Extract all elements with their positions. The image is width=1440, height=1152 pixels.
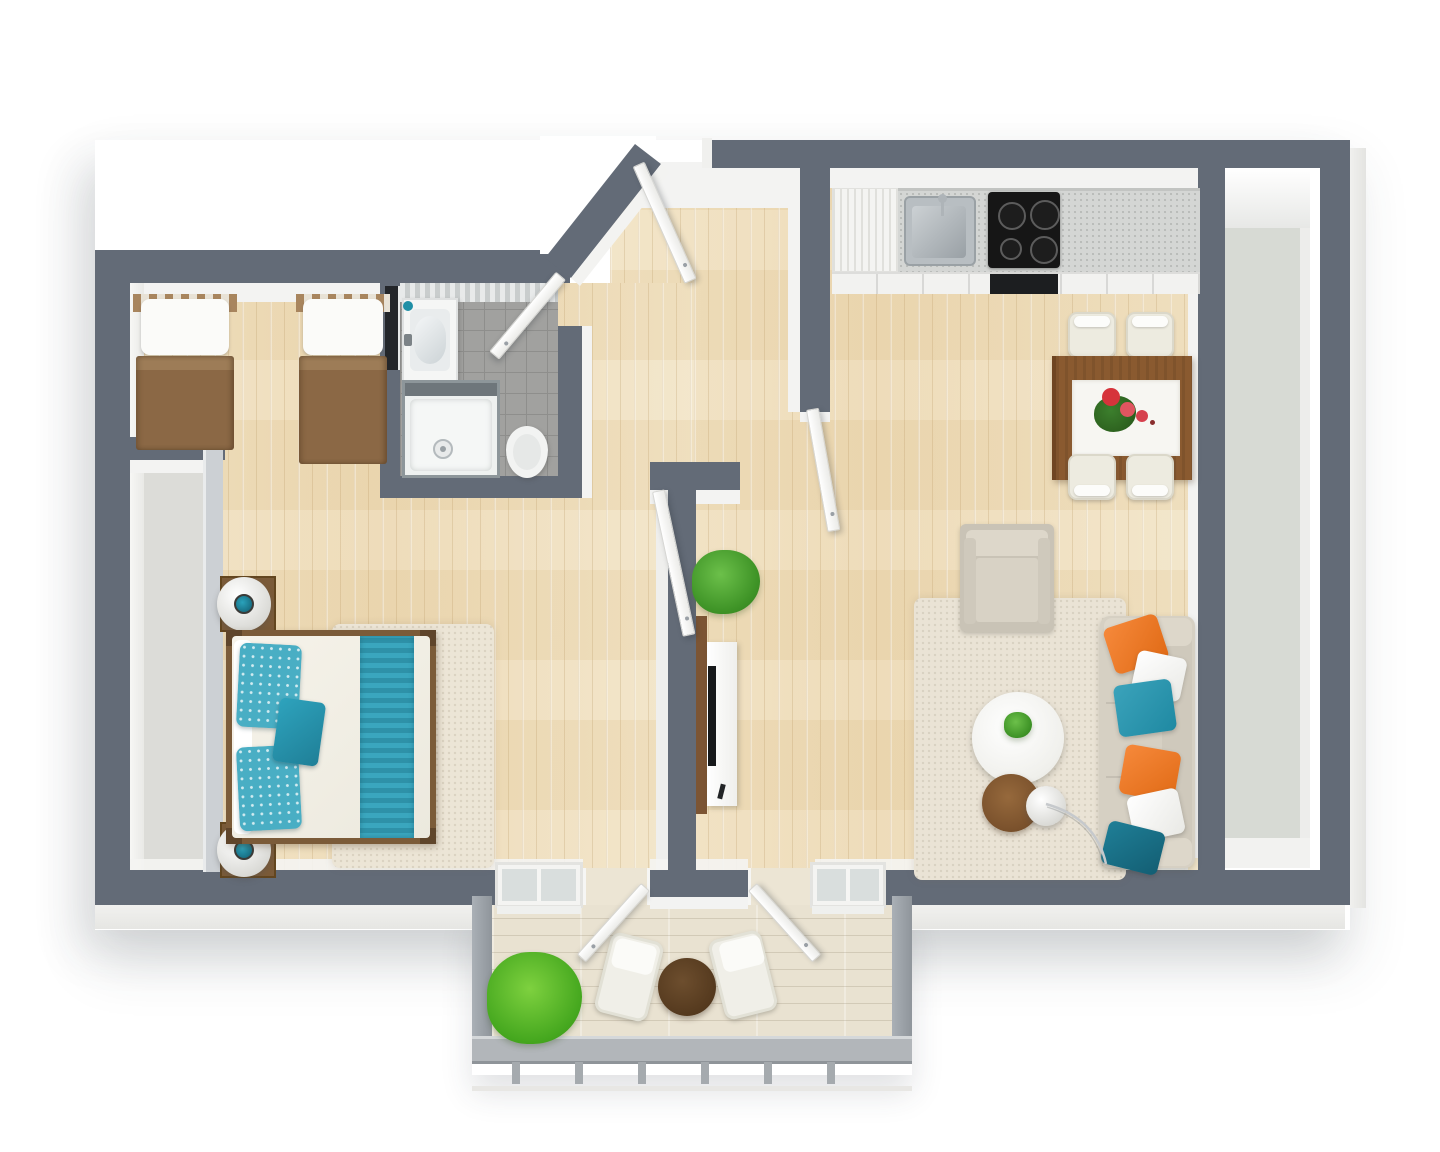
- window-sill-left: [497, 906, 581, 914]
- twin-bed-1: [133, 294, 237, 452]
- railing-post: [827, 1062, 835, 1084]
- wall-right: [1320, 140, 1350, 905]
- wall-left: [95, 250, 130, 905]
- flower-red-icon: [1136, 410, 1148, 422]
- outer-face-bottom-east: [908, 905, 1345, 929]
- sink-tap-icon: [404, 334, 412, 346]
- wall-face-hallwall-west: [788, 172, 800, 412]
- wall-face-strip-top: [1225, 168, 1310, 228]
- bathroom-cup-icon: [403, 301, 413, 311]
- pier-south-face: [650, 897, 748, 909]
- kitchen-sink: [904, 196, 976, 266]
- flower-bud-icon: [1150, 420, 1155, 425]
- balcony-window-left: [495, 862, 583, 908]
- entry-jamb-right: [702, 138, 712, 168]
- wall-face-bottom-2: [650, 859, 748, 870]
- double-bed: [226, 630, 436, 844]
- dining-chair-bottom-right: [1126, 454, 1174, 500]
- dining-chair-top-left: [1068, 312, 1116, 358]
- wall-nook-right: [203, 437, 223, 872]
- flower-red-icon: [1102, 388, 1120, 406]
- wall-face-bathright-east: [582, 326, 592, 498]
- twin-bed-2: [296, 294, 390, 466]
- sofa-pillow-teal: [1113, 678, 1178, 738]
- wall-face-kitchen-top: [830, 168, 1203, 188]
- balcony-table: [658, 958, 716, 1016]
- bed-runner: [360, 636, 414, 838]
- wall-kitchen-stub: [800, 150, 830, 412]
- wall-face-strip-right: [1300, 228, 1310, 838]
- railing-post: [512, 1062, 520, 1084]
- wall-side-balcony: [1198, 168, 1225, 905]
- balcony-window-right: [810, 862, 886, 908]
- floor-side-balcony: [1225, 192, 1310, 868]
- wall-bathroom-right: [558, 326, 582, 498]
- railing-post: [575, 1062, 583, 1084]
- armchair: [960, 524, 1054, 632]
- wall-face-strip-bottom: [1225, 838, 1310, 868]
- wall-top-left: [95, 250, 570, 283]
- cooktop: [988, 192, 1060, 268]
- railing-post: [764, 1062, 772, 1084]
- floor-plan-canvas: [0, 0, 1440, 1152]
- tv-screen-icon: [708, 666, 716, 766]
- oven: [990, 272, 1058, 294]
- railing-post: [638, 1062, 646, 1084]
- outer-face-right: [1350, 148, 1366, 908]
- nightstand-lamp-1: [217, 577, 271, 631]
- floor-lamp-shade: [1026, 786, 1066, 826]
- window-sill-right: [812, 906, 884, 914]
- flower-red-icon: [1120, 402, 1135, 417]
- dining-chair-bottom-left: [1068, 454, 1116, 500]
- bathroom-sink-vanity: [402, 298, 458, 382]
- railing-base-line: [472, 1086, 912, 1091]
- wall-hall-divider: [650, 462, 740, 490]
- bed-accent-pillow: [272, 697, 326, 767]
- toilet: [506, 426, 550, 478]
- dining-chair-top-right: [1126, 312, 1174, 358]
- shower-enclosure: [402, 380, 500, 478]
- coffee-table: [972, 692, 1064, 784]
- wall-bathroom-bottom: [380, 476, 582, 498]
- kitchen-fridge: [832, 188, 898, 272]
- outer-face-bottom-west: [95, 905, 478, 929]
- railing-post: [701, 1062, 709, 1084]
- tv-wall-panel: [696, 616, 707, 814]
